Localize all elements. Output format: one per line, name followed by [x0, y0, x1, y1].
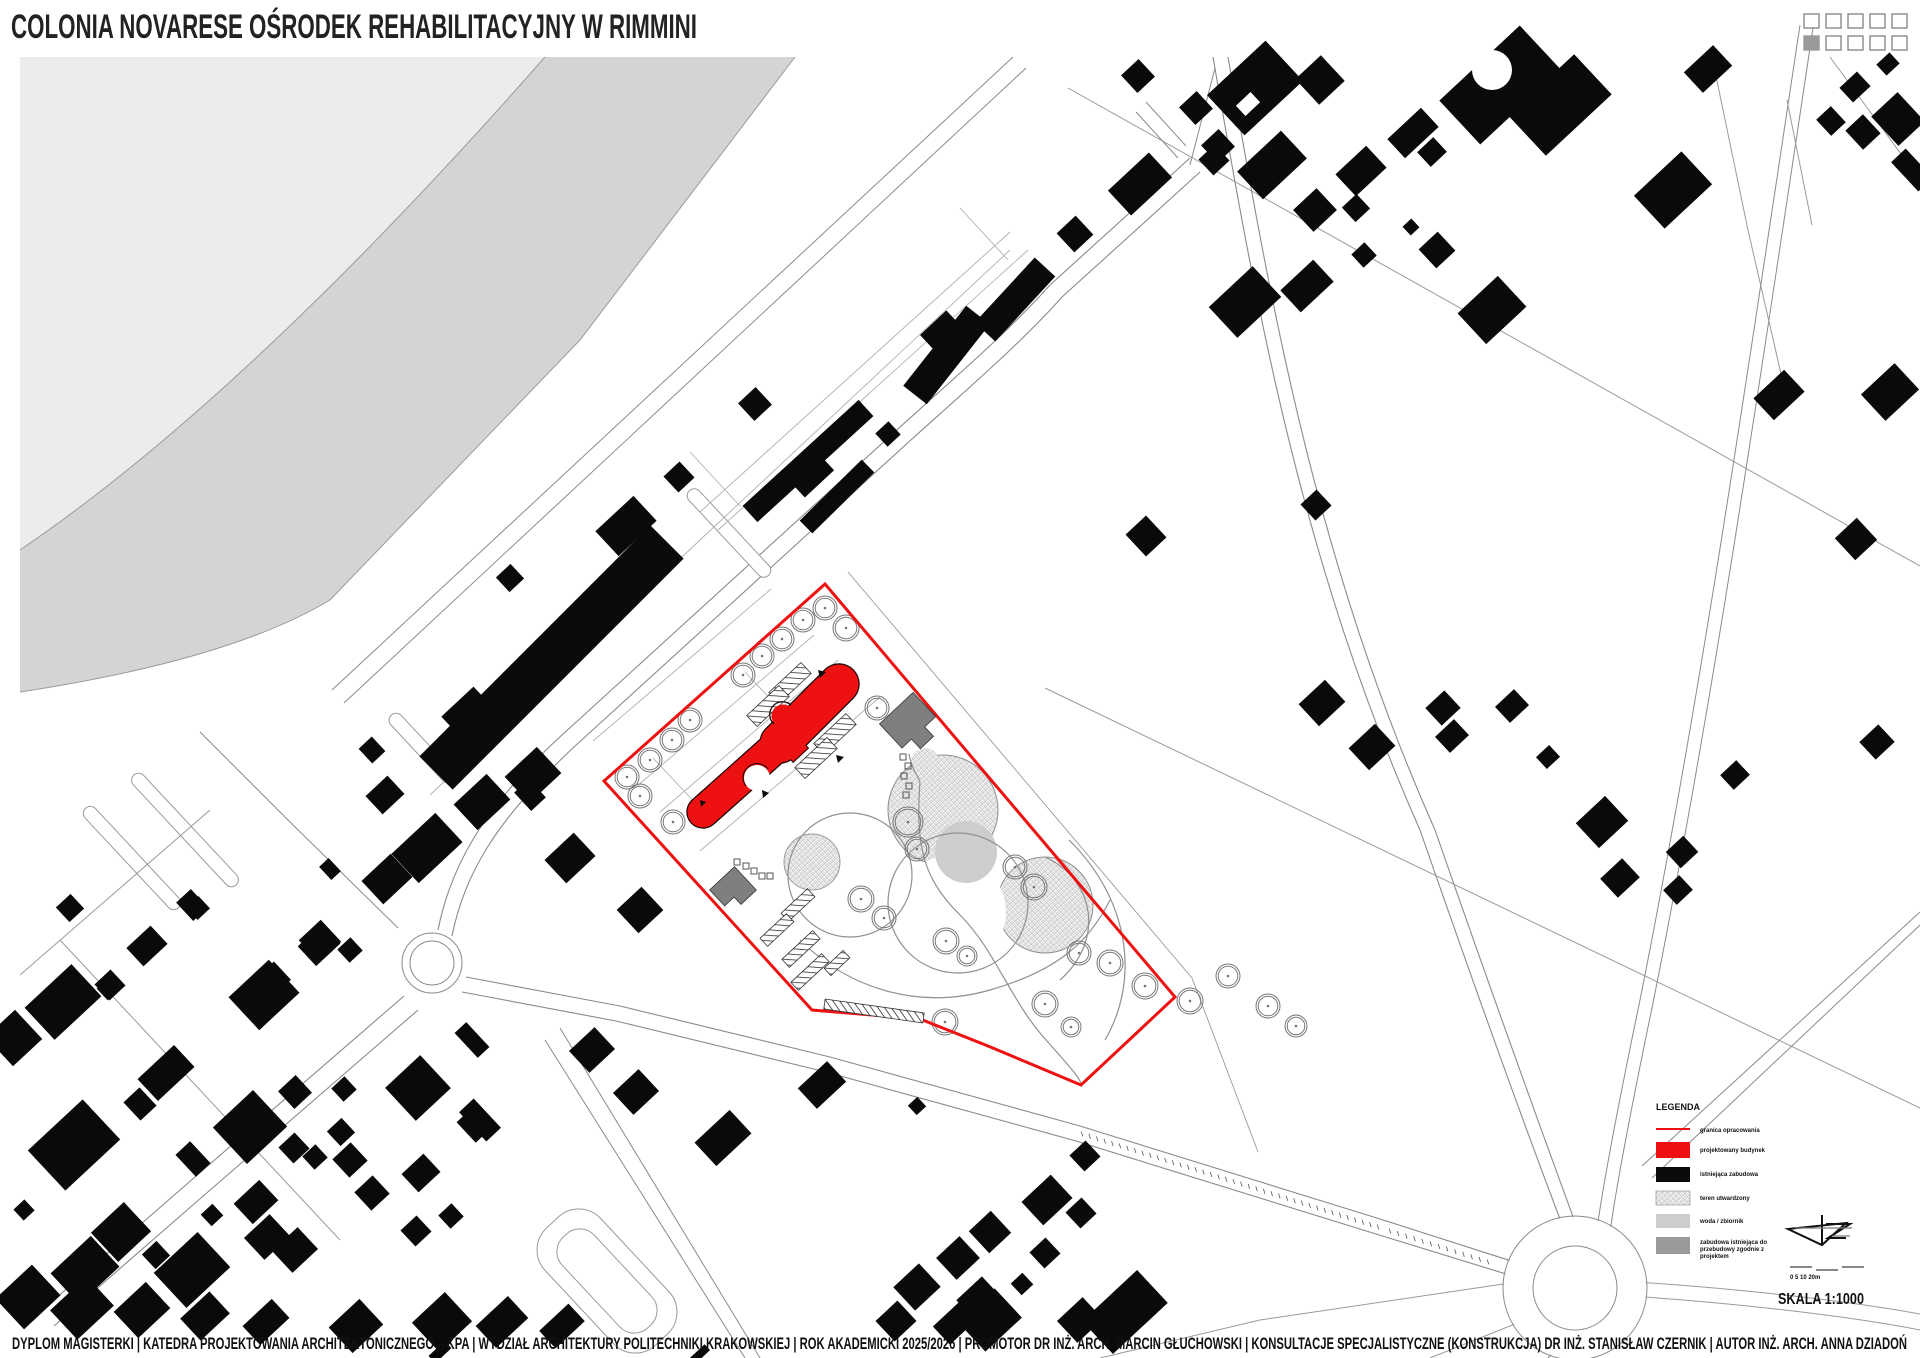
svg-text:COLONIA NOVARESE OŚRODEK REHAB: COLONIA NOVARESE OŚRODEK REHABILITACYJNY…	[11, 8, 697, 46]
svg-text:przebudowy zgodnie z: przebudowy zgodnie z	[1700, 1247, 1764, 1253]
svg-text:istniejąca zabudowa: istniejąca zabudowa	[1700, 1172, 1759, 1178]
svg-text:teren utwardzony: teren utwardzony	[1700, 1196, 1750, 1202]
svg-text:woda / zbiornik: woda / zbiornik	[1699, 1219, 1744, 1225]
svg-text:projektem: projektem	[1700, 1254, 1729, 1260]
svg-text:granica opracowania: granica opracowania	[1700, 1128, 1760, 1134]
svg-text:zabudowa istniejąca do: zabudowa istniejąca do	[1700, 1240, 1767, 1246]
svg-text:SKALA 1:1000: SKALA 1:1000	[1778, 1291, 1864, 1308]
svg-text:0 5 10 20m: 0 5 10 20m	[1790, 1275, 1820, 1281]
svg-text:DYPLOM MAGISTERKI | KATEDRA PR: DYPLOM MAGISTERKI | KATEDRA PROJEKTOWANI…	[12, 1334, 1907, 1353]
svg-text:projektowany budynek: projektowany budynek	[1700, 1148, 1766, 1154]
svg-text:LEGENDA: LEGENDA	[1656, 1102, 1701, 1112]
